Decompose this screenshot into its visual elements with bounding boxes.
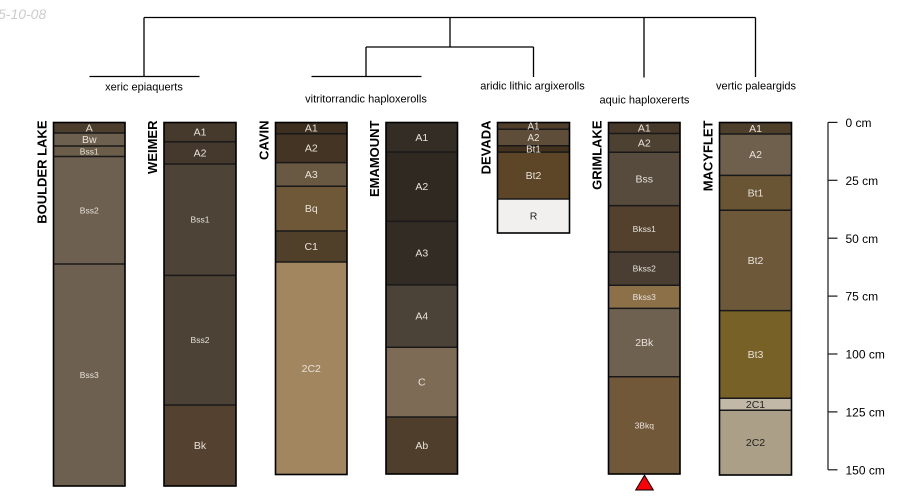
svg-text:A2: A2	[638, 137, 651, 149]
svg-text:125 cm: 125 cm	[846, 406, 885, 420]
svg-text:A1: A1	[305, 123, 318, 135]
svg-text:50 cm: 50 cm	[846, 232, 879, 246]
svg-text:MACYFLET: MACYFLET	[701, 120, 716, 191]
svg-text:Bkss1: Bkss1	[633, 224, 656, 234]
svg-text:Bss2: Bss2	[80, 205, 99, 215]
svg-text:Bss2: Bss2	[191, 335, 210, 345]
svg-text:75 cm: 75 cm	[846, 290, 879, 304]
svg-text:C: C	[418, 377, 426, 389]
svg-text:A1: A1	[415, 132, 428, 144]
svg-text:Bss1: Bss1	[191, 215, 210, 225]
svg-text:Bt1: Bt1	[526, 144, 541, 155]
svg-text:Bss: Bss	[635, 173, 653, 185]
svg-text:A3: A3	[415, 248, 428, 260]
svg-text:BOULDER LAKE: BOULDER LAKE	[35, 120, 50, 224]
svg-text:Bkss3: Bkss3	[633, 292, 656, 302]
svg-text:3Bkq: 3Bkq	[635, 420, 655, 430]
svg-text:Bt3: Bt3	[748, 349, 764, 361]
svg-text:xeric epiaquerts: xeric epiaquerts	[105, 82, 183, 94]
svg-text:A4: A4	[415, 311, 428, 323]
svg-text:Bt2: Bt2	[748, 255, 764, 267]
svg-text:A2: A2	[415, 181, 428, 193]
svg-text:Bt2: Bt2	[526, 170, 542, 182]
svg-text:A2: A2	[528, 133, 540, 144]
svg-text:A2: A2	[305, 143, 318, 155]
svg-text:100 cm: 100 cm	[846, 348, 885, 362]
svg-text:A1: A1	[194, 127, 207, 139]
svg-text:aquic haploxererts: aquic haploxererts	[600, 95, 690, 107]
svg-text:25 cm: 25 cm	[846, 174, 879, 188]
svg-text:Bss3: Bss3	[80, 370, 99, 380]
svg-text:0 cm: 0 cm	[846, 116, 872, 130]
svg-text:GRIMLAKE: GRIMLAKE	[590, 120, 605, 190]
svg-text:DEVADA: DEVADA	[479, 120, 494, 175]
svg-text:A1: A1	[638, 123, 651, 135]
svg-text:C1: C1	[305, 241, 319, 253]
svg-text:150 cm: 150 cm	[846, 463, 885, 477]
svg-text:2Bk: 2Bk	[635, 337, 654, 349]
svg-text:Bq: Bq	[305, 203, 318, 215]
svg-text:Ab: Ab	[415, 440, 428, 452]
svg-text:2C2: 2C2	[746, 437, 765, 449]
svg-text:Bw: Bw	[82, 134, 97, 146]
svg-text:2C1: 2C1	[746, 399, 765, 411]
svg-text:A2: A2	[749, 149, 762, 161]
svg-text:vertic paleargids: vertic paleargids	[716, 81, 797, 93]
svg-text:vitritorrandic haploxerolls: vitritorrandic haploxerolls	[305, 94, 427, 106]
svg-text:EMAMOUNT: EMAMOUNT	[367, 120, 382, 197]
svg-text:WEIMER: WEIMER	[145, 120, 160, 174]
svg-text:R: R	[530, 211, 538, 223]
svg-text:Bss1: Bss1	[80, 146, 99, 156]
svg-text:A2: A2	[194, 147, 207, 159]
svg-text:5-10-08: 5-10-08	[0, 6, 46, 22]
svg-text:aridic lithic argixerolls: aridic lithic argixerolls	[480, 81, 585, 93]
svg-text:A1: A1	[528, 121, 540, 132]
svg-text:Bk: Bk	[194, 440, 207, 452]
svg-text:2C2: 2C2	[302, 363, 321, 375]
svg-text:A1: A1	[749, 123, 762, 135]
svg-text:Bkss2: Bkss2	[633, 264, 656, 274]
svg-text:Bt1: Bt1	[748, 187, 764, 199]
svg-text:A3: A3	[305, 169, 318, 181]
svg-text:CAVIN: CAVIN	[257, 121, 272, 160]
svg-text:A: A	[86, 122, 93, 134]
